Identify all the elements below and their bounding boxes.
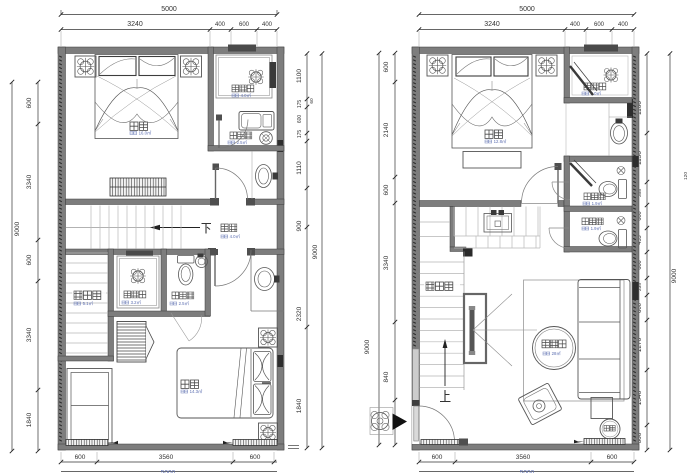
svg-text:1110: 1110: [296, 161, 303, 175]
svg-text:400: 400: [570, 22, 581, 28]
svg-text:5000: 5000: [520, 470, 535, 473]
svg-text:60: 60: [309, 98, 315, 104]
svg-text:5000: 5000: [161, 6, 177, 13]
svg-text:600: 600: [250, 454, 261, 461]
svg-text:4.0㎡: 4.0㎡: [241, 92, 252, 98]
svg-text:3340: 3340: [383, 255, 390, 270]
svg-text:9000: 9000: [671, 268, 678, 283]
svg-text:840: 840: [383, 371, 390, 382]
svg-text:9000: 9000: [312, 244, 319, 259]
svg-text:1.9㎡: 1.9㎡: [591, 225, 602, 231]
svg-text:600: 600: [26, 254, 33, 265]
svg-text:600: 600: [594, 22, 605, 28]
svg-text:5.1㎡: 5.1㎡: [83, 300, 94, 306]
svg-text:2.5㎡: 2.5㎡: [179, 300, 190, 306]
svg-text:9000: 9000: [364, 339, 371, 354]
svg-text:9000: 9000: [14, 221, 21, 236]
svg-text:3560: 3560: [516, 454, 531, 461]
svg-text:1.9㎡: 1.9㎡: [592, 200, 603, 206]
svg-text:16.0㎡: 16.0㎡: [139, 130, 152, 136]
svg-text:400: 400: [262, 22, 273, 28]
svg-text:600: 600: [607, 454, 618, 461]
svg-text:600: 600: [432, 454, 443, 461]
svg-text:600: 600: [297, 115, 303, 124]
svg-text:1840: 1840: [296, 398, 303, 413]
svg-text:2320: 2320: [296, 306, 303, 321]
svg-text:600: 600: [26, 97, 33, 108]
svg-text:900: 900: [296, 220, 303, 231]
svg-text:3340: 3340: [26, 327, 33, 342]
svg-text:5000: 5000: [519, 6, 535, 13]
svg-text:2.5㎡: 2.5㎡: [237, 139, 248, 145]
svg-text:5000: 5000: [161, 470, 176, 473]
svg-text:28㎡: 28㎡: [552, 350, 562, 356]
svg-text:400: 400: [618, 22, 629, 28]
svg-text:1840: 1840: [26, 412, 33, 427]
svg-text:600: 600: [75, 454, 86, 461]
svg-text:4.0㎡: 4.0㎡: [230, 233, 241, 239]
svg-text:600: 600: [383, 184, 390, 195]
svg-text:14.3㎡: 14.3㎡: [190, 388, 203, 394]
svg-text:400: 400: [215, 22, 226, 28]
svg-text:175: 175: [297, 130, 303, 139]
svg-text:3240: 3240: [484, 21, 500, 28]
svg-text:120: 120: [683, 172, 689, 180]
svg-text:3.2㎡: 3.2㎡: [131, 299, 142, 305]
svg-text:175: 175: [297, 100, 303, 109]
svg-text:3240: 3240: [127, 21, 143, 28]
svg-text:2140: 2140: [383, 122, 390, 137]
svg-text:3340: 3340: [26, 174, 33, 189]
svg-text:12.8㎡: 12.8㎡: [494, 138, 507, 144]
svg-text:1100: 1100: [296, 69, 303, 83]
svg-text:600: 600: [383, 61, 390, 72]
svg-text:3560: 3560: [159, 454, 174, 461]
svg-text:600: 600: [239, 22, 250, 28]
